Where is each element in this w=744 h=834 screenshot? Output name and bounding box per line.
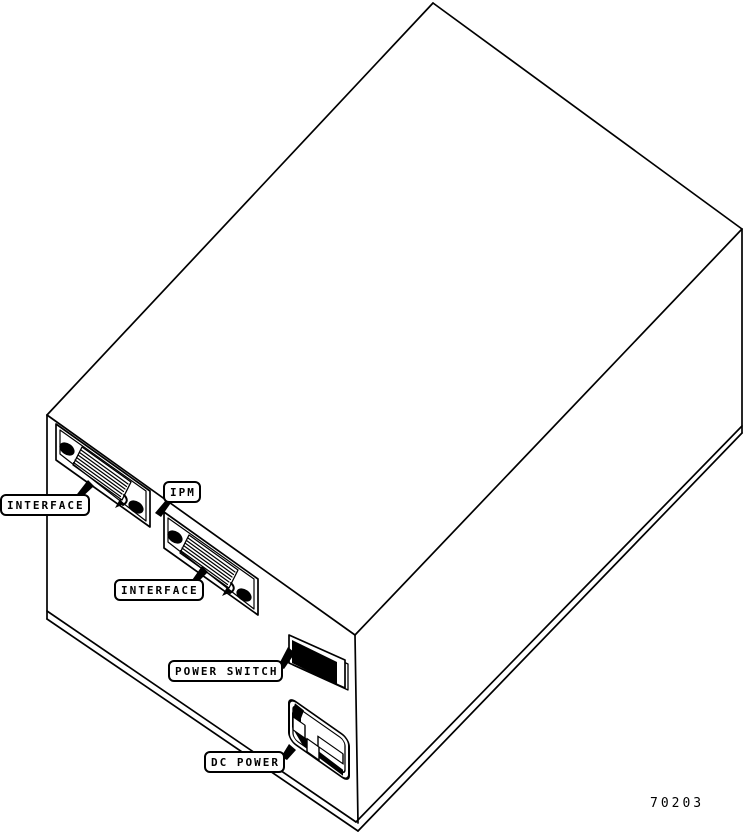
dc-power-inlet xyxy=(289,697,349,782)
rear-panel-diagram: INTERFACE IPM INTERFACE POWER SWITCH DC … xyxy=(0,0,744,834)
ipm-callout: IPM xyxy=(163,481,201,503)
dc-power-callout: DC POWER xyxy=(204,751,285,773)
equipment-line-art xyxy=(0,0,744,834)
figure-number: 70203 xyxy=(650,797,704,810)
interface-bottom-callout: INTERFACE xyxy=(114,579,204,601)
cabinet-outline xyxy=(47,3,742,831)
interface-top-callout: INTERFACE xyxy=(0,494,90,516)
callout-leaders xyxy=(74,480,296,760)
power-switch xyxy=(289,635,348,690)
power-switch-callout: POWER SWITCH xyxy=(168,660,283,682)
